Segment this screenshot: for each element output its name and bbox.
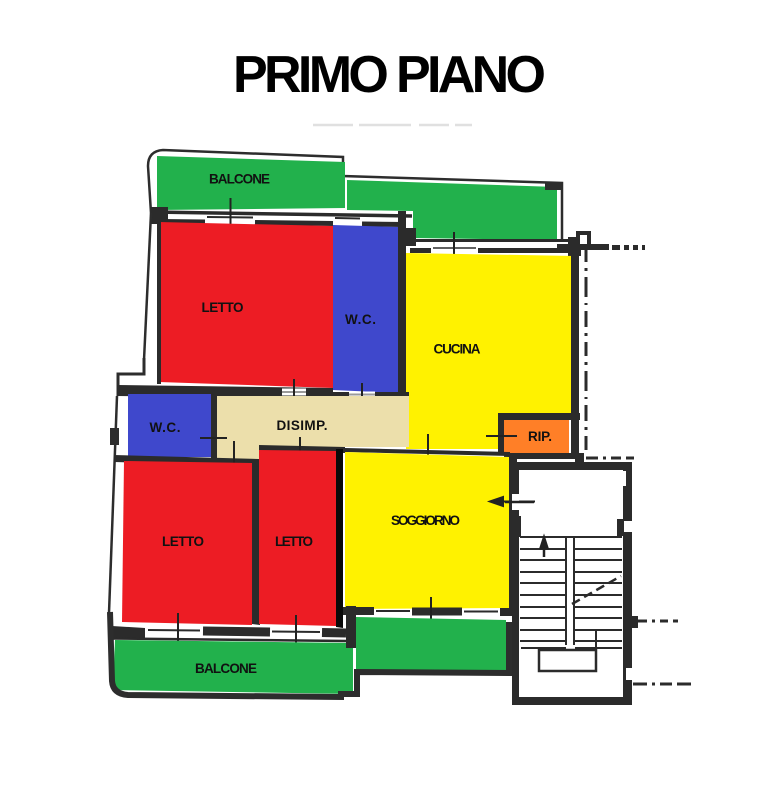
svg-text:RIP.: RIP. [528,429,552,444]
svg-text:LETTO: LETTO [162,534,204,549]
svg-text:W.C.: W.C. [345,312,376,327]
svg-text:BALCONE: BALCONE [195,661,257,676]
svg-text:W.C.: W.C. [150,420,181,435]
svg-text:LETTO: LETTO [202,300,244,315]
svg-text:BALCONE: BALCONE [209,172,270,187]
svg-text:SOGGIORNO: SOGGIORNO [391,513,460,528]
svg-text:LETTO: LETTO [275,534,313,549]
svg-text:CUCINA: CUCINA [434,342,481,357]
svg-text:PRIMO PIANO: PRIMO PIANO [233,46,546,104]
svg-text:DISIMP.: DISIMP. [277,418,328,433]
